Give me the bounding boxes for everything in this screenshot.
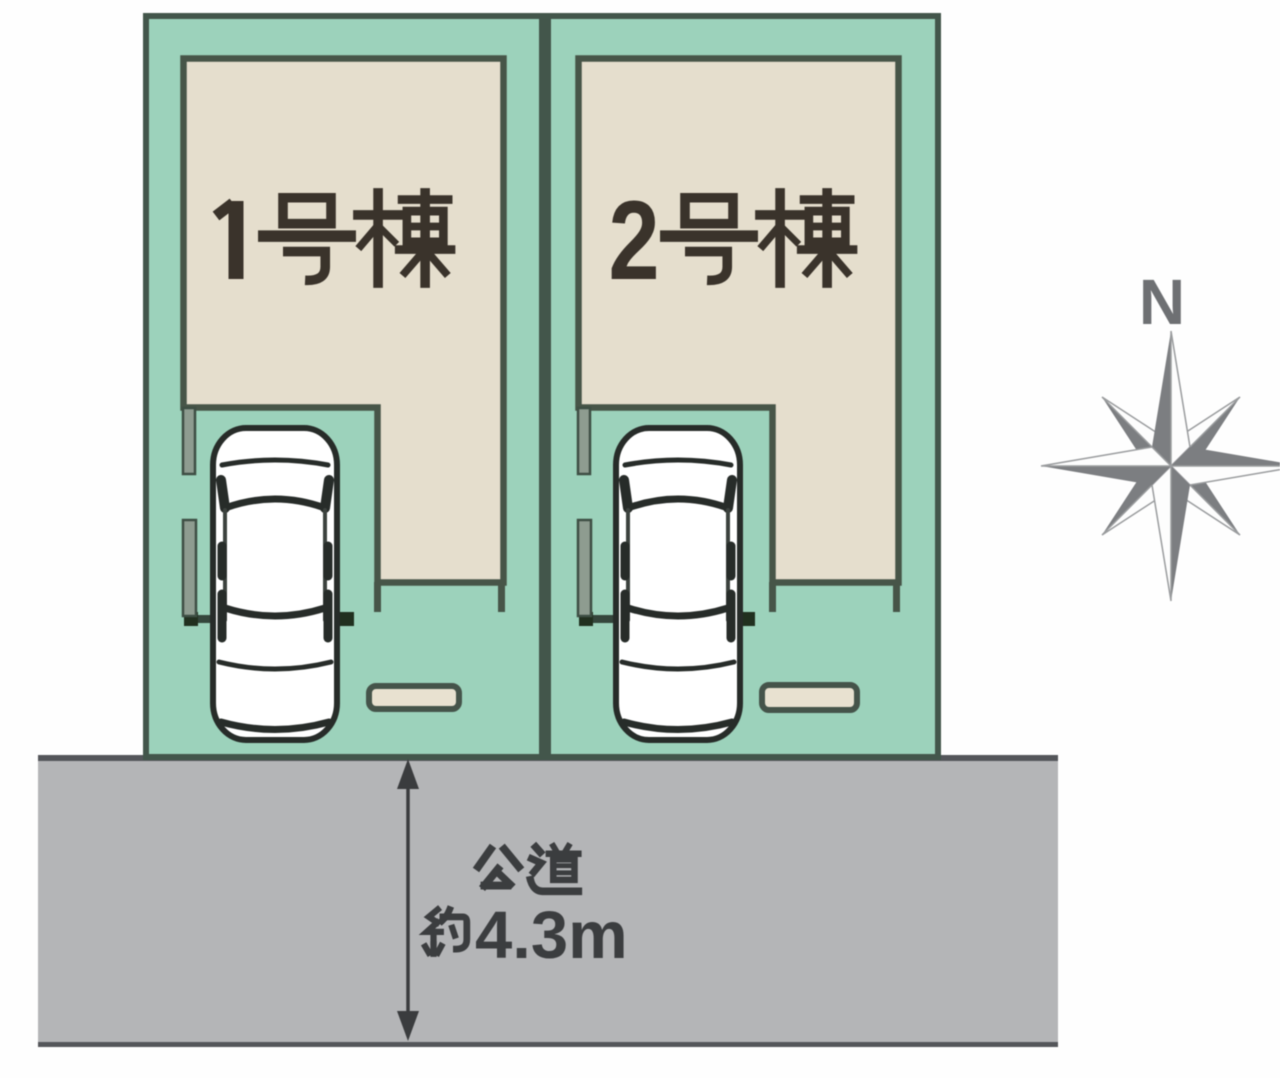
svg-text:2: 2	[608, 177, 659, 303]
svg-text:N: N	[1139, 266, 1185, 338]
svg-text:4.3m: 4.3m	[475, 898, 628, 973]
